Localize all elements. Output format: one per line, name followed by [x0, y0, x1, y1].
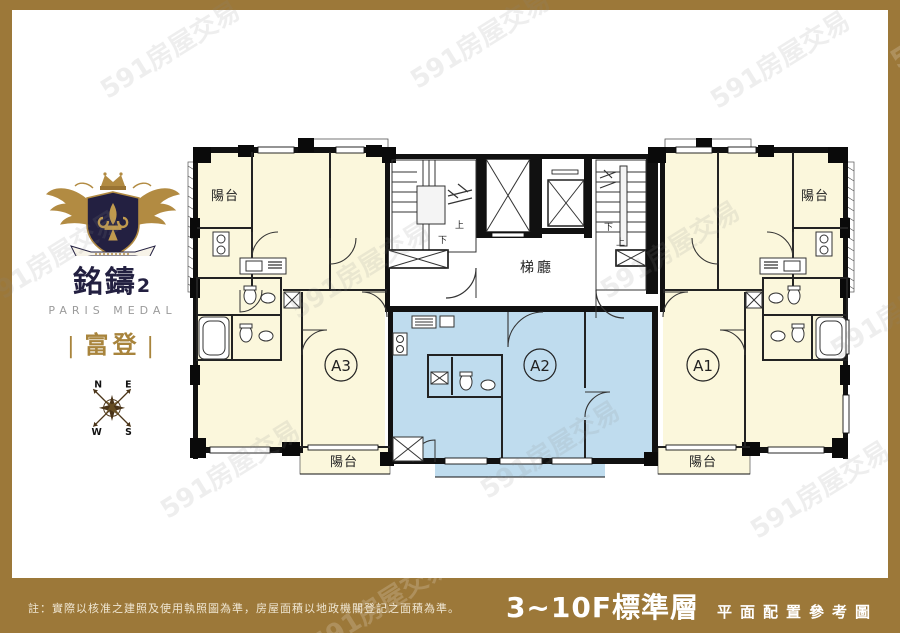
compass-w-label: W	[91, 427, 101, 436]
balcony-label-bottom-left: 陽台	[330, 455, 358, 470]
svg-text:A1: A1	[693, 357, 713, 375]
brand-title-en: PARIS MEDAL	[35, 304, 190, 317]
svg-text:A2: A2	[530, 357, 550, 375]
crown-icon	[101, 175, 125, 186]
stair-down-label-right: 下	[604, 223, 613, 233]
brand-title-zh: 銘鑄	[73, 265, 137, 300]
stair-up-label-left: 上	[455, 220, 464, 231]
floor-range-title: 3~10F標準層	[506, 586, 699, 626]
brand-subtitle: |富登|	[35, 325, 190, 360]
svg-text:A3: A3	[331, 357, 351, 375]
compass-e-label: E	[125, 379, 131, 390]
balcony-label-top-left: 陽台	[211, 189, 239, 204]
compass-n-label: N	[94, 379, 102, 390]
plan-title-block: 3~10F標準層 平面配置參考圖	[506, 586, 878, 626]
page-frame: 銘鑄2 PARIS MEDAL |富登| N E W S	[0, 0, 900, 633]
balcony-label-top-right: 陽台	[801, 189, 829, 204]
brand-title: 銘鑄2	[35, 268, 190, 298]
floor-plan: 陽台 陽台 陽台 陽台 梯廳 A3 A2 A1 上 下 上 下	[185, 130, 855, 490]
stair-down-label-left: 下	[438, 236, 447, 246]
balcony-label-bottom-right: 陽台	[689, 455, 717, 470]
plan-subtitle: 平面配置參考圖	[717, 601, 878, 622]
brand-block: 銘鑄2 PARIS MEDAL |富登|	[35, 170, 190, 360]
unit-a2-area	[390, 310, 655, 477]
footer-bar: 註：實際以核准之建照及使用執照圖為準，房屋面積以地政機關登記之面積為準。 3~1…	[0, 578, 900, 633]
elevator-1	[486, 159, 530, 237]
compass-rose-icon: N E W S	[84, 378, 140, 436]
disclaimer-note: 註：實際以核准之建照及使用執照圖為準，房屋面積以地政機關登記之面積為準。	[28, 600, 460, 616]
winged-crest-icon	[43, 170, 183, 256]
compass-s-label: S	[125, 427, 132, 436]
stair-up-label-right: 上	[616, 237, 625, 248]
elevator-2	[548, 170, 584, 226]
brand-title-num: 2	[137, 275, 152, 297]
lobby-label: 梯廳	[520, 259, 554, 276]
